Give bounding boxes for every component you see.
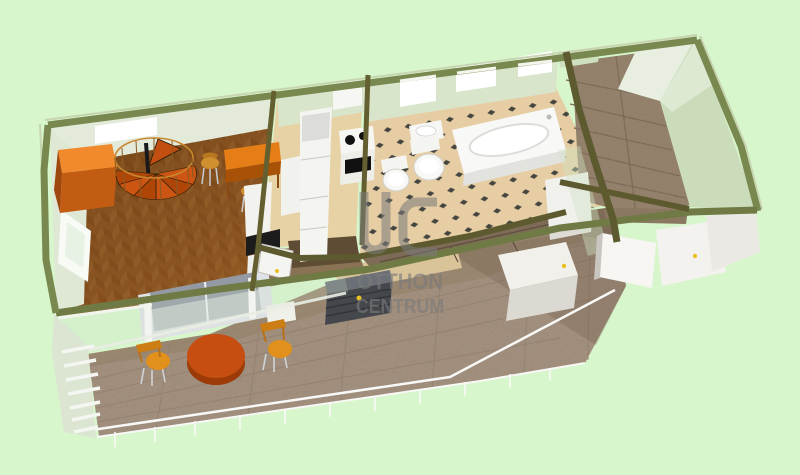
svg-text:OTTHON: OTTHON (357, 269, 443, 294)
svg-text:CENTRUM: CENTRUM (356, 296, 444, 318)
